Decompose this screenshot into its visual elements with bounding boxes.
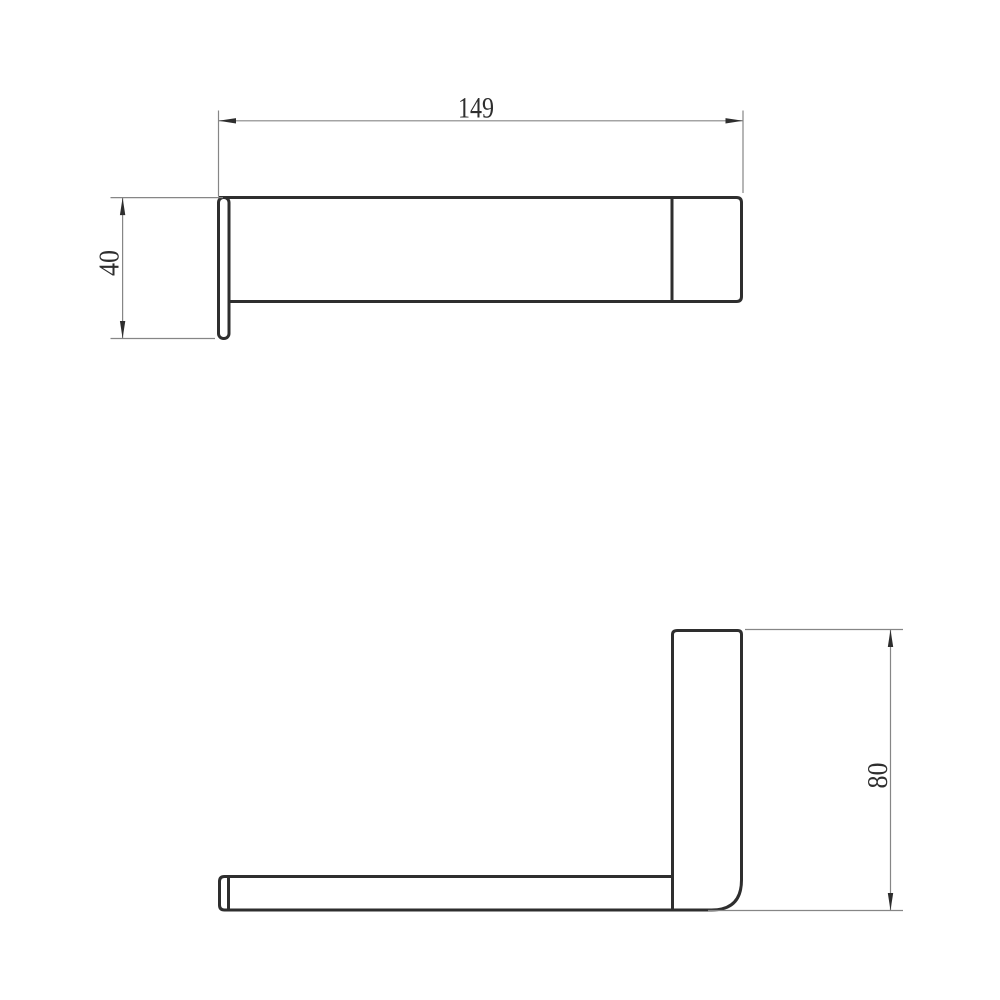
svg-text:40: 40 — [94, 250, 126, 276]
svg-text:80: 80 — [862, 763, 894, 789]
svg-text:149: 149 — [458, 92, 494, 125]
